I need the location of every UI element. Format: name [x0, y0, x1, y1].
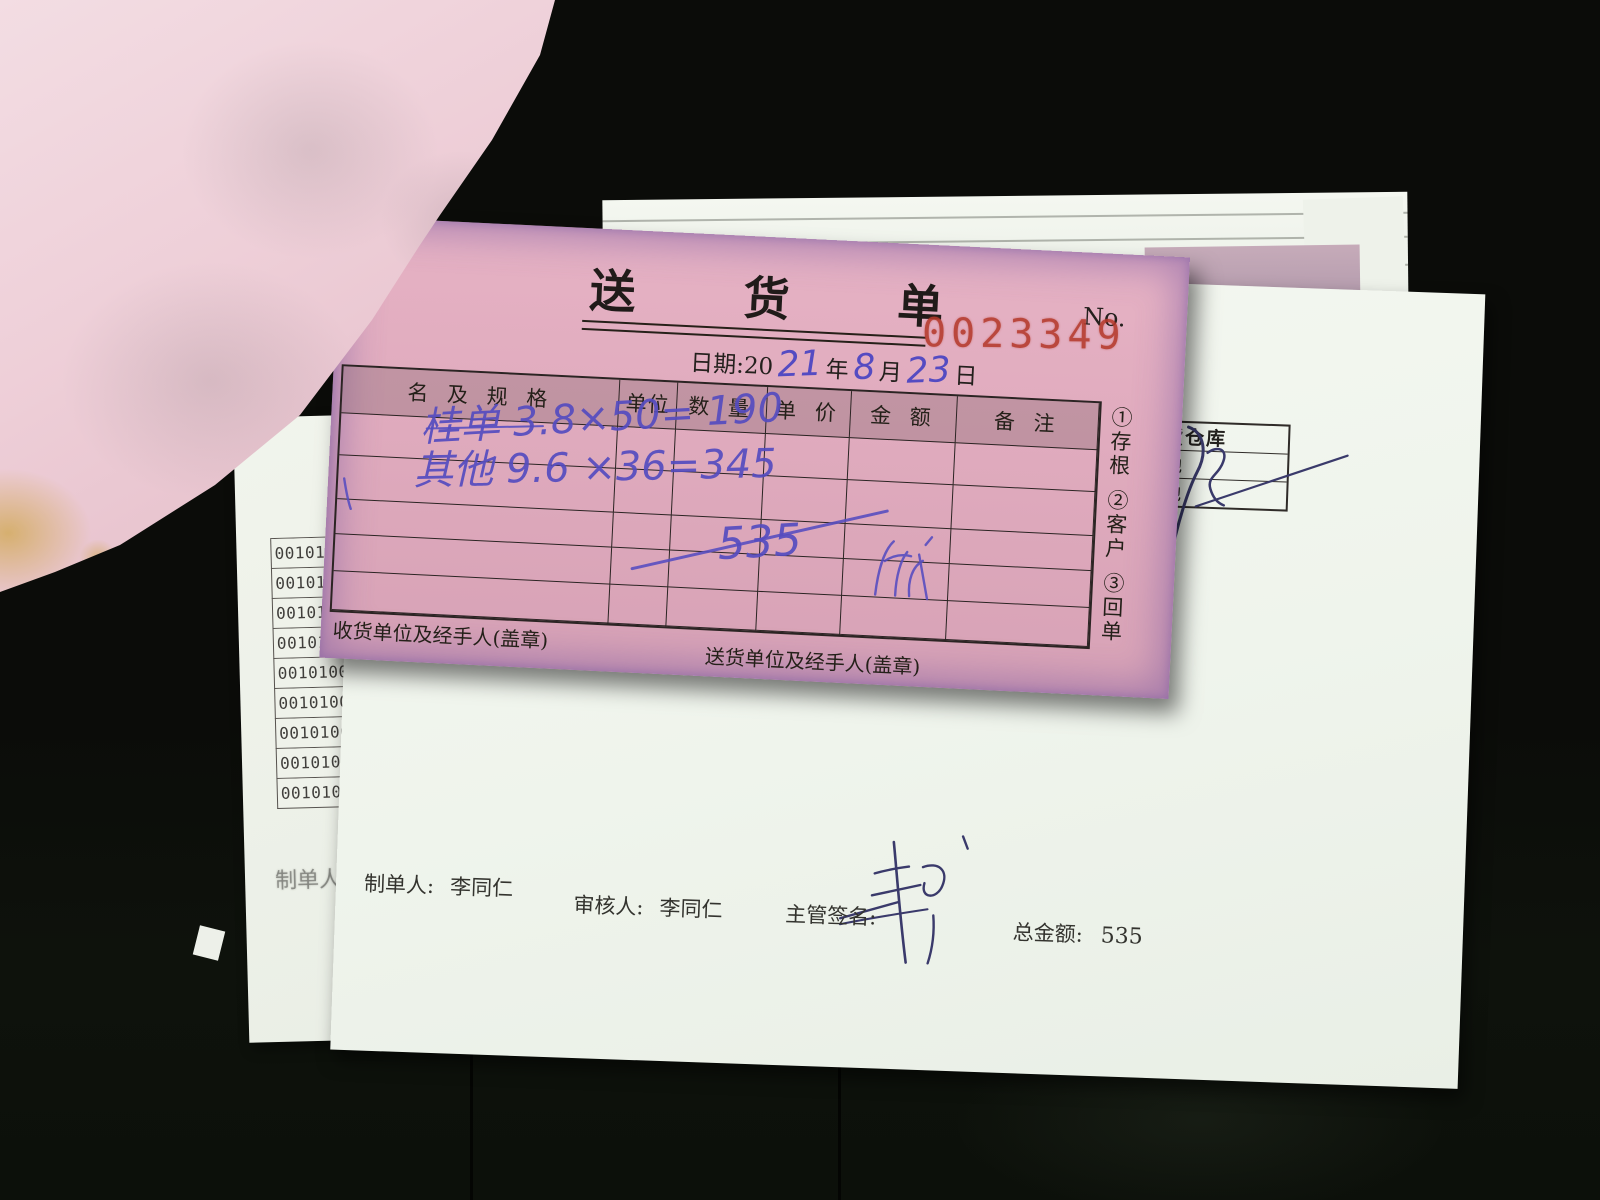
table-cell — [848, 438, 956, 485]
copy-label-return: ③回单 — [1095, 571, 1128, 644]
manager-sign-label: 主管签名: — [785, 898, 877, 931]
paper-edge-line — [603, 212, 1408, 222]
grand-total-label: 总金额: — [1012, 920, 1083, 946]
preparer-line: 制单人:李同仁 — [364, 868, 514, 903]
reviewer-line: 审核人:李同仁 — [573, 889, 723, 924]
table-cell — [846, 480, 954, 529]
copy-label-stub: ①存根 — [1103, 406, 1136, 479]
stain-mark — [78, 540, 118, 576]
table-cell — [666, 587, 758, 630]
handwritten-item-2: 其他 9.6 ×36=345 — [413, 431, 777, 497]
date-year-handwritten: 21 — [777, 344, 823, 386]
table-cell — [954, 443, 1098, 492]
delivery-note-form: 送 货 单 No. 0023349 日期:20 21 年 8 月 23 日 名 … — [319, 216, 1190, 699]
table-cell — [756, 592, 842, 635]
copy-labels: ①存根 ②客户 ③回单 — [1095, 406, 1137, 645]
table-cell — [612, 513, 672, 551]
date-day-handwritten: 23 — [905, 350, 951, 392]
grand-total-value: 535 — [1100, 923, 1143, 949]
date-month-handwritten: 8 — [852, 347, 876, 388]
sender-footer: 送货单位及经手人(盖章) — [704, 640, 921, 679]
reviewer-label: 审核人: — [573, 893, 644, 919]
paper-corner-speck — [193, 925, 225, 960]
table-cell — [840, 596, 948, 640]
date-day-unit: 日 — [954, 356, 979, 391]
table-cell — [842, 559, 950, 601]
table-cell — [844, 524, 952, 564]
date-year-unit: 年 — [825, 350, 850, 385]
grand-total-line: 总金额:535 — [1012, 916, 1143, 951]
table-cell — [610, 548, 670, 588]
header-amount: 金 额 — [850, 391, 958, 443]
copy-label-customer: ②客户 — [1099, 489, 1132, 562]
handwritten-quantity-total: 535 — [716, 515, 803, 571]
reviewer-name: 李同仁 — [659, 896, 723, 922]
preparer-name: 李同仁 — [450, 875, 514, 901]
table-cell — [608, 585, 668, 627]
header-remarks: 备 注 — [956, 396, 1100, 450]
table-cell — [946, 601, 1090, 647]
table-cell — [951, 485, 1095, 536]
photo-of-delivery-documents: 00101008 00101008 00101008 00101008 0010… — [0, 0, 1600, 1200]
date-month-unit: 月 — [878, 352, 903, 387]
preparer-label: 制单人: — [364, 872, 435, 898]
